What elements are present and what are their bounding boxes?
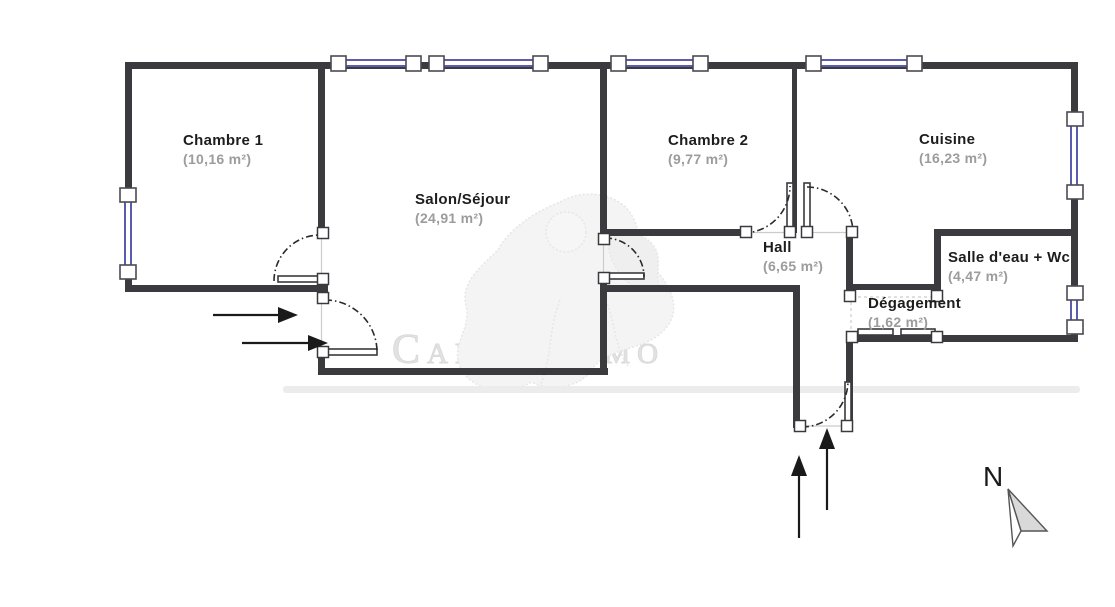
room-area: (10,16 m²) xyxy=(183,151,263,169)
room-label-hall: Hall (6,65 m²) xyxy=(763,239,823,275)
entrance-arrows xyxy=(791,428,835,538)
room-label-chambre2: Chambre 2 (9,77 m²) xyxy=(668,132,748,168)
arrow-right-icon xyxy=(242,335,328,351)
room-name: Salon/Séjour xyxy=(415,191,510,210)
ground-shadow xyxy=(283,386,1080,393)
room-area: (6,65 m²) xyxy=(763,258,823,276)
room-area: (24,91 m²) xyxy=(415,210,510,228)
room-label-salon: Salon/Séjour (24,91 m²) xyxy=(415,191,510,227)
room-name: Cuisine xyxy=(919,131,987,150)
room-area: (1,62 m²) xyxy=(868,314,961,332)
arrow-up-icon xyxy=(819,428,835,510)
room-name: Hall xyxy=(763,239,823,258)
floorplan-page: CannisImmo xyxy=(0,0,1115,607)
room-area: (4,47 m²) xyxy=(948,268,1070,286)
room-label-chambre1: Chambre 1 (10,16 m²) xyxy=(183,132,263,168)
room-label-salle-eau: Salle d'eau + Wc (4,47 m²) xyxy=(948,249,1070,285)
room-name: Salle d'eau + Wc xyxy=(948,249,1070,268)
room-label-cuisine: Cuisine (16,23 m²) xyxy=(919,131,987,167)
compass-label: N xyxy=(983,461,1003,492)
room-area: (9,77 m²) xyxy=(668,151,748,169)
room-area: (16,23 m²) xyxy=(919,150,987,168)
side-access-arrows xyxy=(213,307,328,351)
room-name: Dégagement xyxy=(868,295,961,314)
arrow-right-icon xyxy=(213,307,298,323)
north-arrow-icon: N xyxy=(983,461,1047,546)
room-name: Chambre 2 xyxy=(668,132,748,151)
room-name: Chambre 1 xyxy=(183,132,263,151)
arrow-up-icon xyxy=(791,455,807,538)
room-label-degagement: Dégagement (1,62 m²) xyxy=(868,295,961,331)
